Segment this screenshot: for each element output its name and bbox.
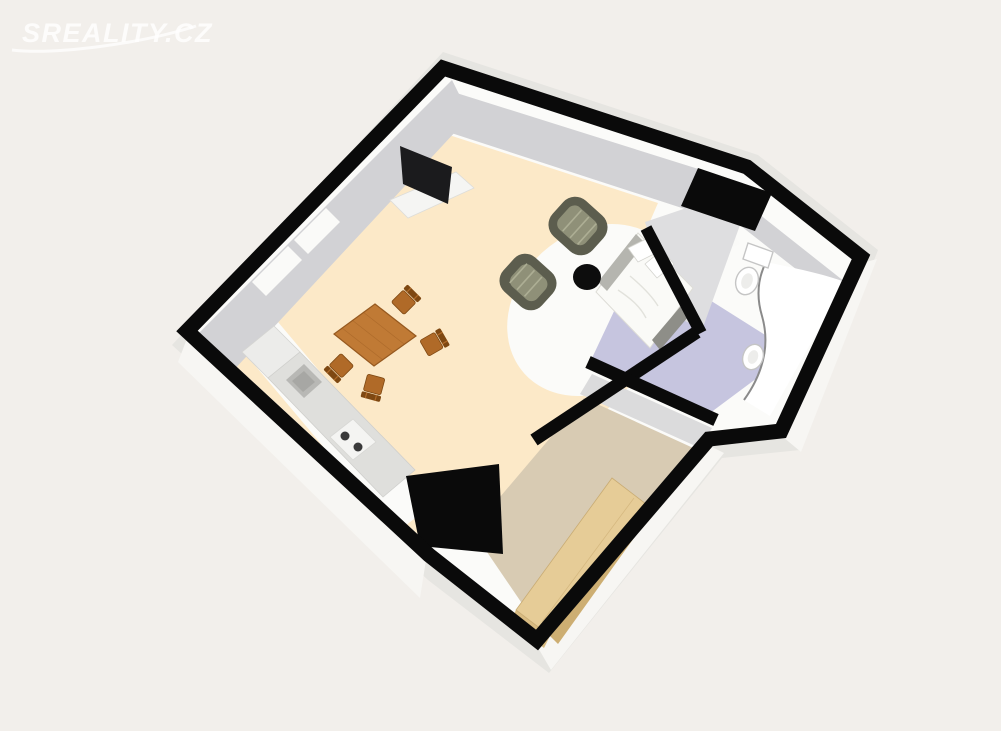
floorplan-page: SREALITY.CZ — [0, 0, 1001, 731]
watermark: SREALITY.CZ — [12, 18, 213, 51]
stove-burner — [341, 432, 350, 441]
floorplan-3d-render: SREALITY.CZ — [0, 0, 1001, 731]
stove-burner — [354, 443, 363, 452]
round-coffee-table — [573, 264, 601, 290]
